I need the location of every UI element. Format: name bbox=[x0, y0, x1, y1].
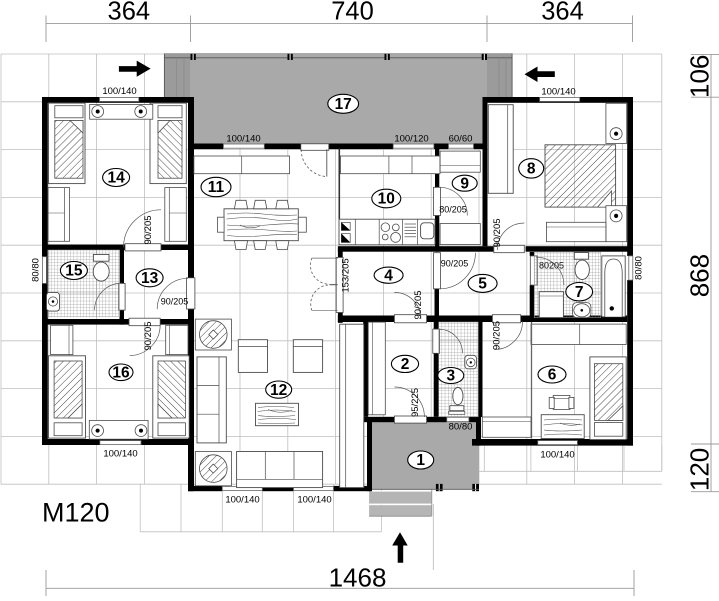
svg-text:100/140: 100/140 bbox=[102, 86, 136, 97]
svg-text:90/205: 90/205 bbox=[161, 297, 189, 307]
svg-text:10: 10 bbox=[378, 191, 395, 208]
svg-text:100/140: 100/140 bbox=[226, 134, 260, 145]
svg-text:100/140: 100/140 bbox=[541, 87, 575, 98]
svg-text:15: 15 bbox=[65, 263, 83, 280]
svg-text:80/80: 80/80 bbox=[634, 256, 645, 280]
svg-text:106: 106 bbox=[685, 55, 715, 98]
svg-text:2: 2 bbox=[401, 356, 410, 373]
svg-text:80/80: 80/80 bbox=[449, 422, 473, 433]
svg-text:13: 13 bbox=[141, 270, 159, 287]
svg-text:14: 14 bbox=[107, 170, 125, 187]
svg-text:100/140: 100/140 bbox=[225, 495, 259, 506]
svg-text:90/205: 90/205 bbox=[143, 321, 154, 350]
svg-text:100/120: 100/120 bbox=[394, 134, 428, 145]
svg-text:364: 364 bbox=[541, 0, 584, 26]
svg-text:80/205: 80/205 bbox=[439, 205, 467, 215]
svg-text:16: 16 bbox=[112, 365, 130, 382]
svg-text:11: 11 bbox=[208, 179, 225, 196]
svg-text:60/60: 60/60 bbox=[449, 134, 473, 145]
svg-text:364: 364 bbox=[108, 0, 151, 26]
svg-text:90/205: 90/205 bbox=[491, 321, 502, 350]
svg-text:6: 6 bbox=[548, 367, 557, 384]
svg-text:868: 868 bbox=[685, 254, 715, 297]
svg-text:4: 4 bbox=[384, 267, 393, 284]
svg-text:100/140: 100/140 bbox=[297, 495, 331, 506]
svg-text:1: 1 bbox=[416, 452, 425, 469]
svg-text:100/140: 100/140 bbox=[540, 450, 574, 461]
svg-text:90/205: 90/205 bbox=[143, 215, 154, 244]
svg-text:8: 8 bbox=[527, 161, 536, 178]
svg-text:17: 17 bbox=[335, 96, 352, 113]
svg-text:740: 740 bbox=[331, 0, 374, 26]
svg-text:90/205: 90/205 bbox=[441, 259, 469, 269]
svg-text:95/225: 95/225 bbox=[410, 388, 421, 417]
svg-text:5: 5 bbox=[478, 276, 487, 293]
svg-text:80/80: 80/80 bbox=[31, 258, 42, 282]
svg-text:12: 12 bbox=[270, 382, 287, 399]
svg-text:3: 3 bbox=[446, 368, 455, 385]
svg-text:M120: M120 bbox=[42, 498, 110, 528]
svg-text:1468: 1468 bbox=[329, 563, 387, 593]
svg-text:9: 9 bbox=[460, 175, 469, 192]
svg-text:7: 7 bbox=[575, 284, 584, 301]
svg-text:153/205: 153/205 bbox=[341, 258, 352, 292]
svg-text:90/205: 90/205 bbox=[413, 290, 424, 319]
svg-text:100/140: 100/140 bbox=[103, 449, 137, 460]
svg-text:90/205: 90/205 bbox=[492, 218, 503, 247]
svg-text:120: 120 bbox=[685, 448, 715, 491]
